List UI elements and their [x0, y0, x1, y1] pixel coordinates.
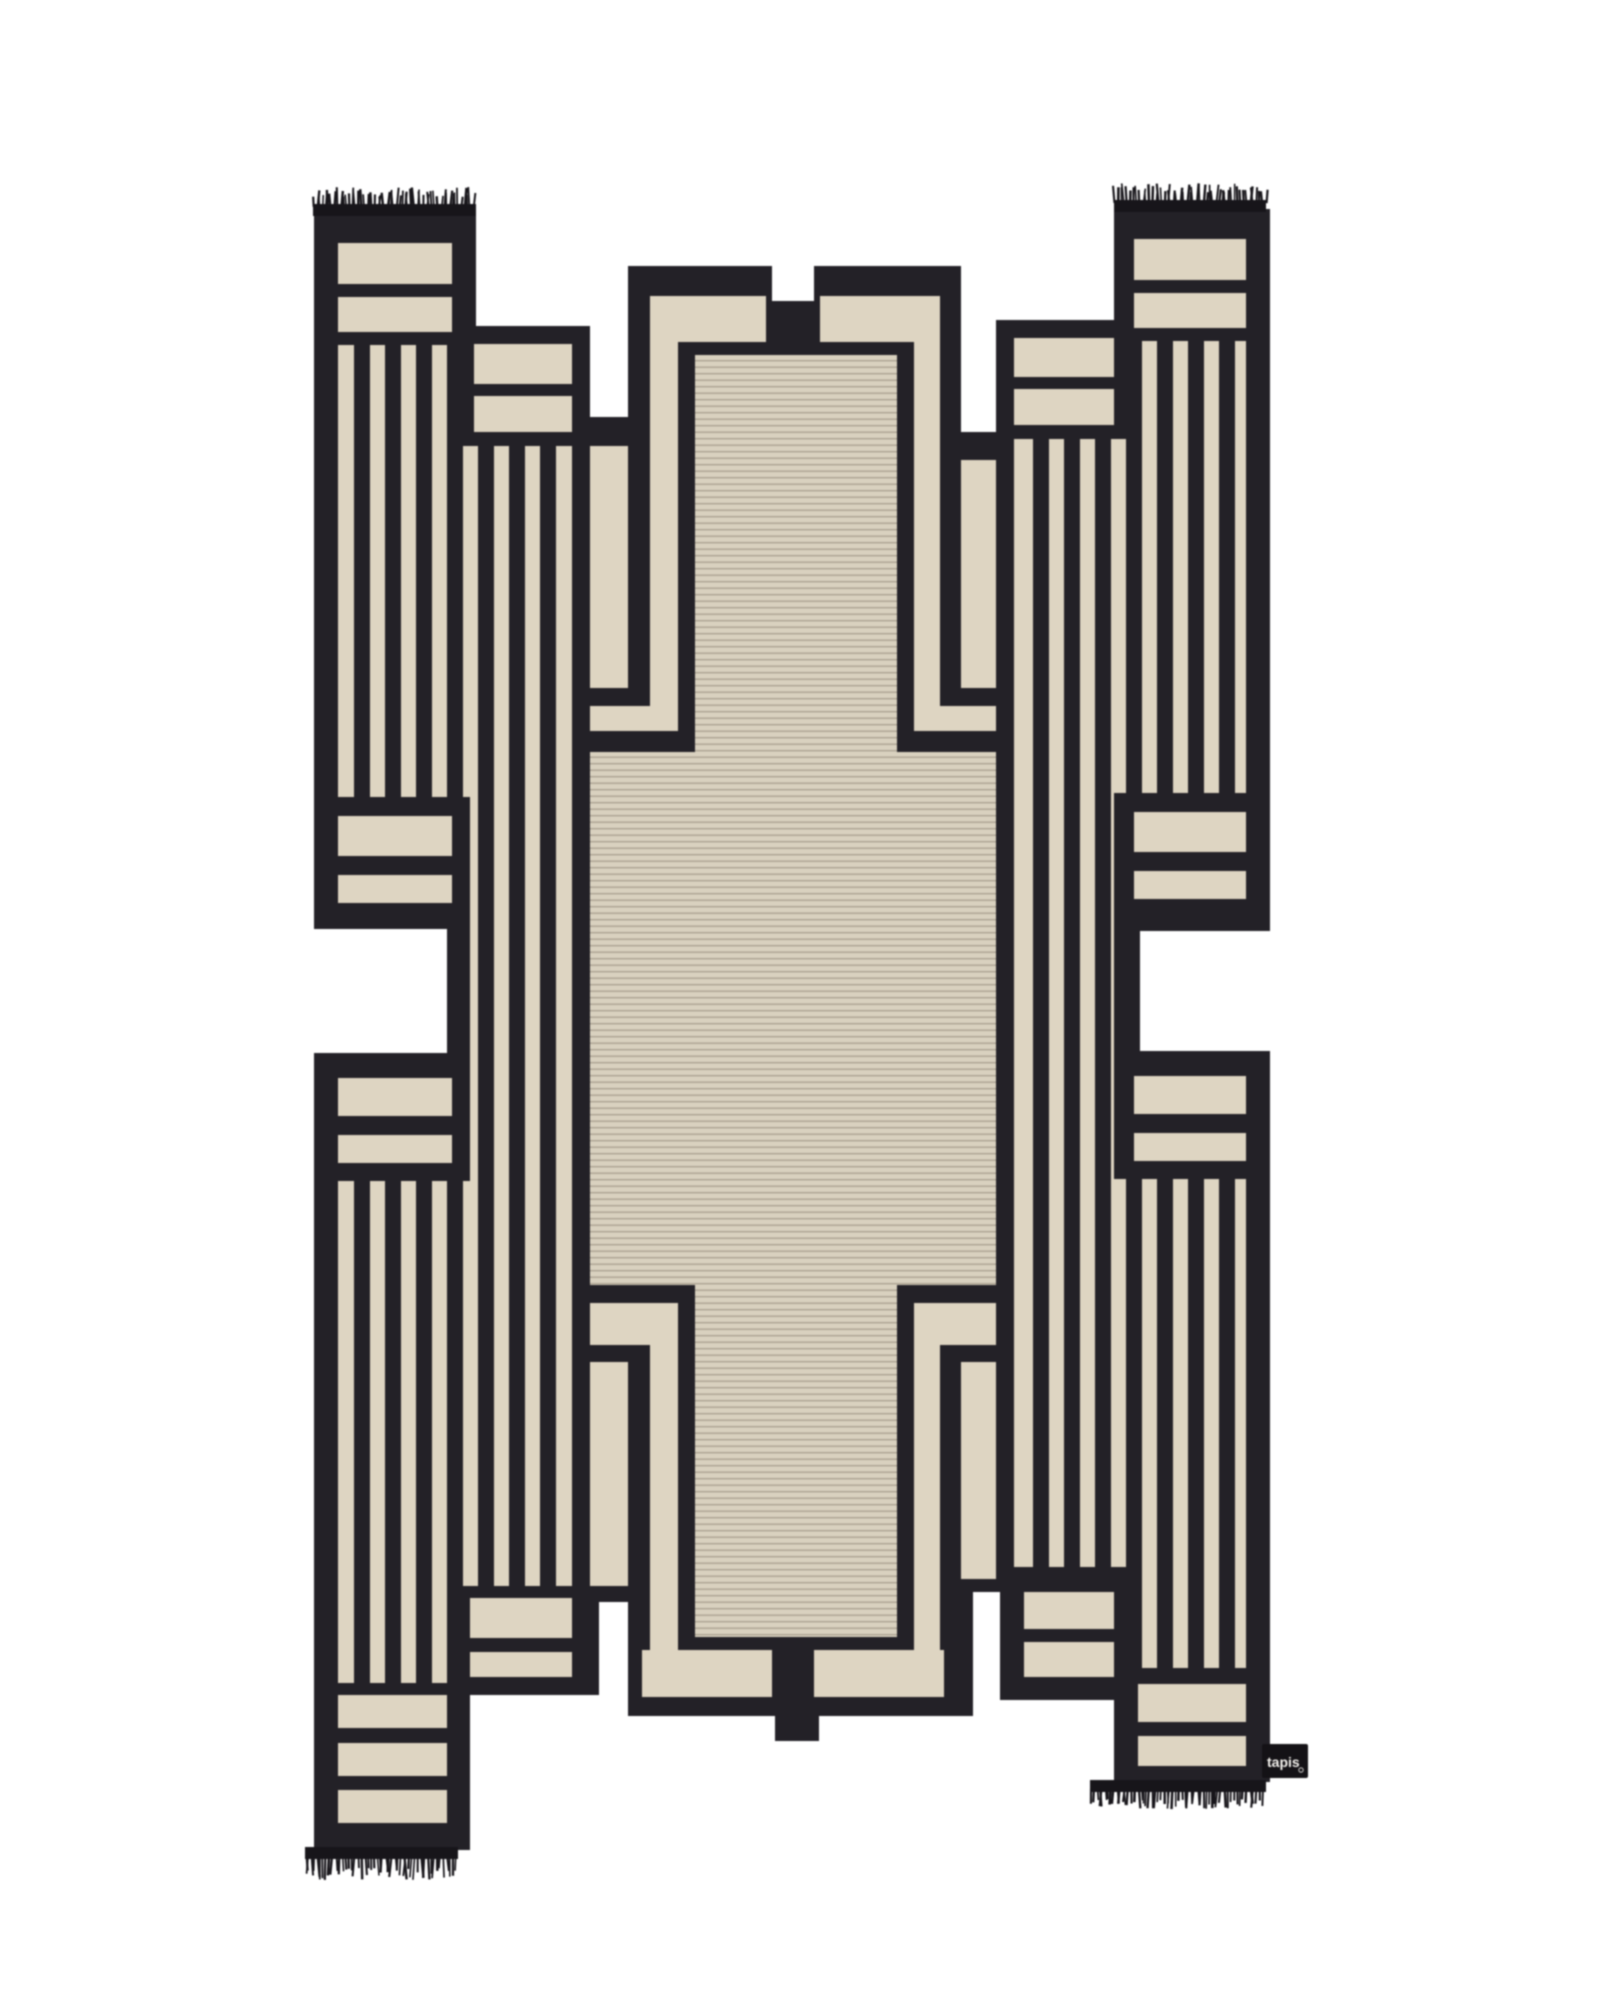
svg-text:tapis: tapis — [1267, 1754, 1300, 1770]
